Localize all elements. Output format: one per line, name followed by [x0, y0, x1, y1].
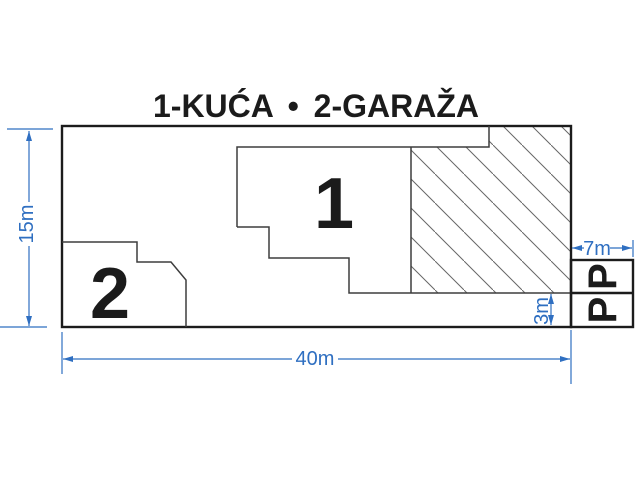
dimension-plot-width: 40m [62, 330, 571, 384]
parking-spaces: P P [571, 260, 633, 327]
arrow-right-icon [622, 245, 632, 251]
arrow-left-icon [572, 245, 582, 251]
arrow-right-icon [560, 356, 570, 362]
arrow-down-icon [26, 316, 32, 326]
garage-label: 2 [90, 254, 130, 334]
hatched-area [411, 126, 571, 293]
dim-label-plot-width: 40m [296, 348, 335, 370]
site-plan: 1-KUĆA • 2-GARAŽA 1 2 P P 15m [0, 0, 640, 480]
arrow-up-icon [26, 131, 32, 141]
dim-label-plot-height: 15m [16, 205, 38, 244]
dim-label-parking-width: 7m [583, 238, 611, 260]
plan-title: 1-KUĆA • 2-GARAŽA [153, 88, 479, 124]
dimension-parking-width: 7m [572, 238, 633, 260]
parking-label-top: P [581, 263, 625, 290]
dimension-plot-height: 15m [0, 129, 53, 327]
house-label: 1 [314, 164, 354, 244]
parking-label-bottom: P [581, 297, 625, 324]
site-plan-drawing: 1-KUĆA • 2-GARAŽA 1 2 P P 15m [0, 0, 640, 480]
arrow-left-icon [63, 356, 73, 362]
dimension-setback-height: 3m [531, 294, 554, 325]
dim-label-setback-height: 3m [531, 297, 553, 325]
